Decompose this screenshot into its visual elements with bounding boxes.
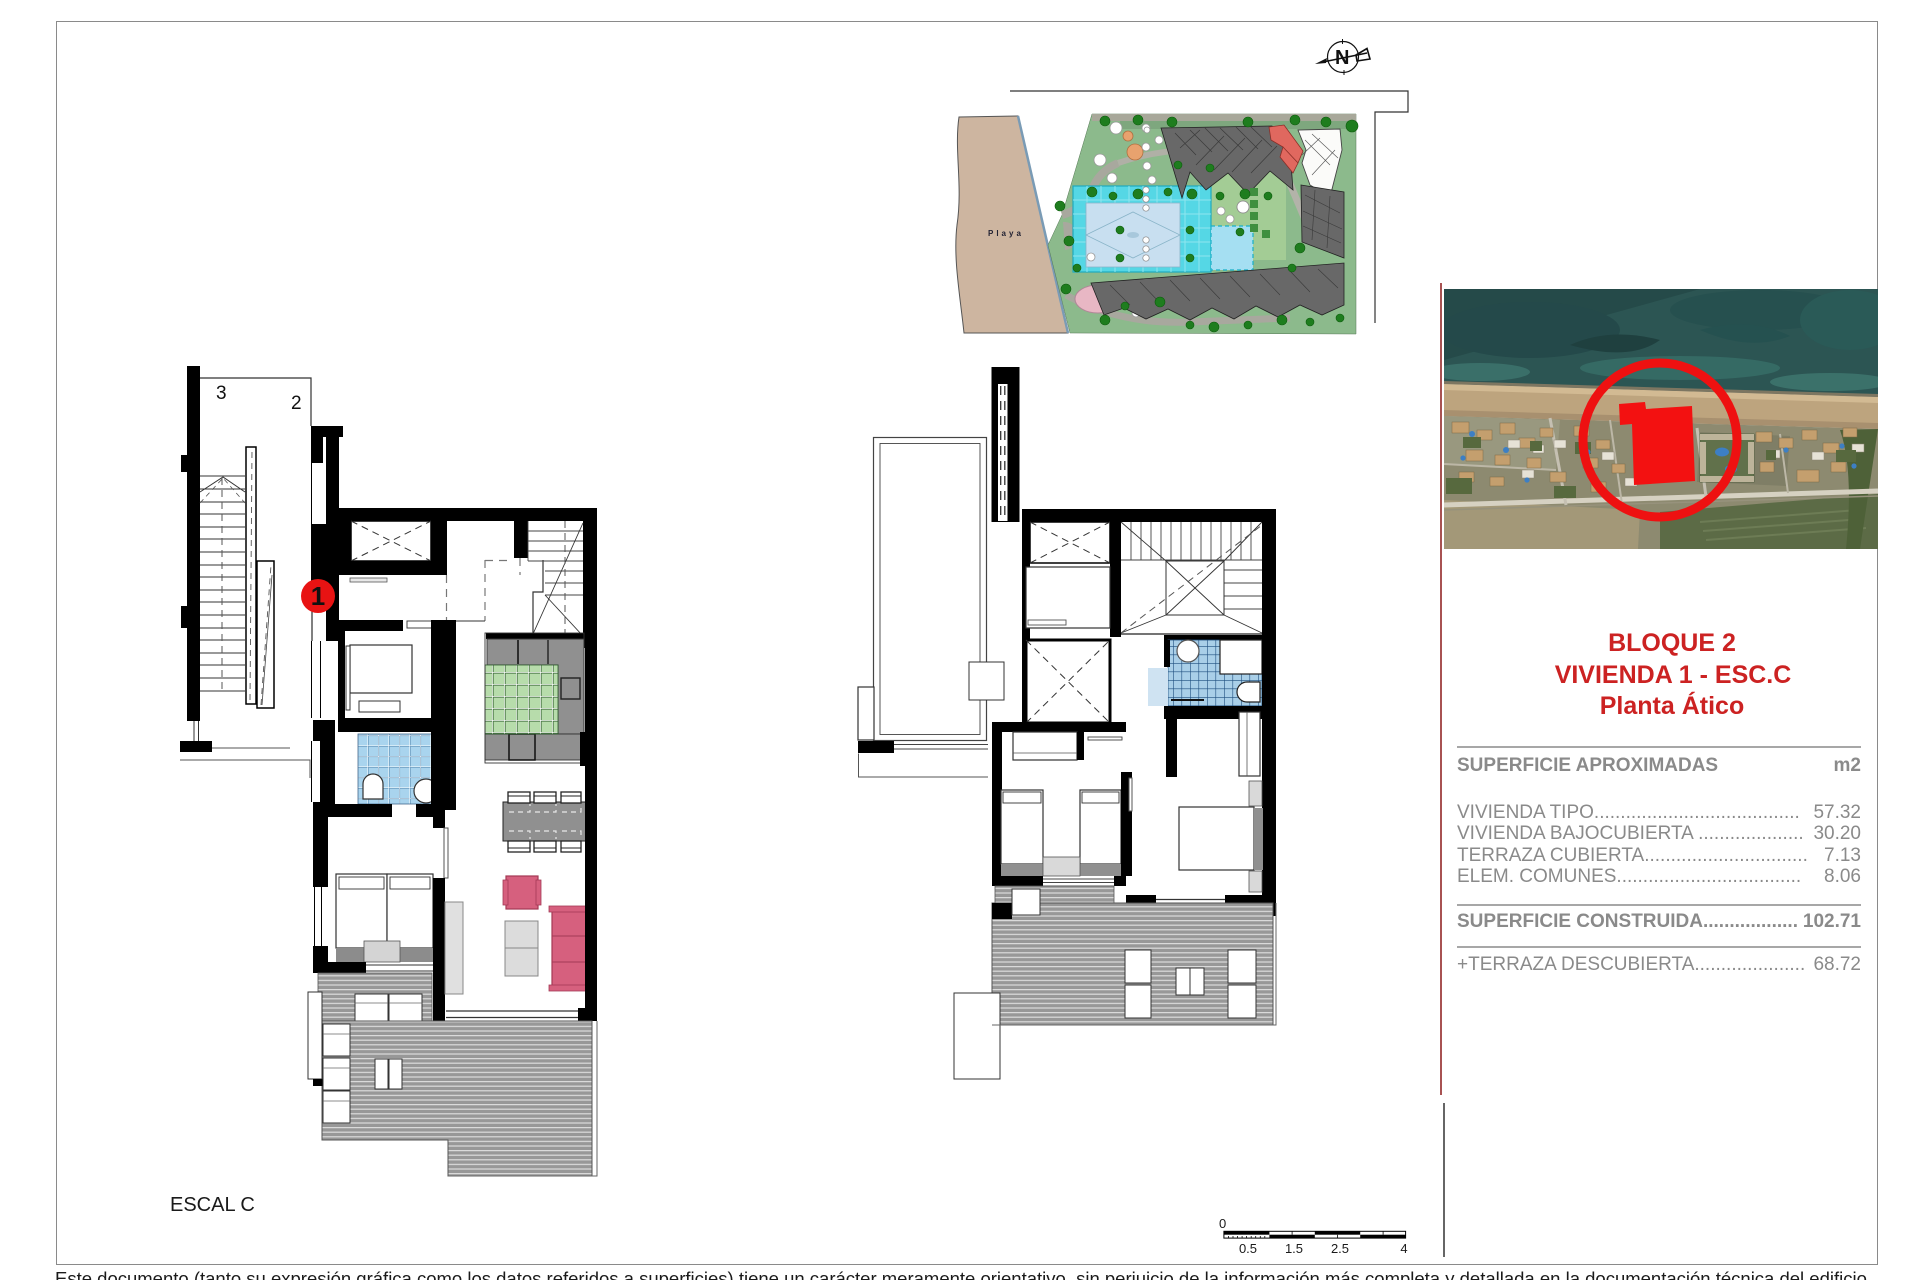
- svg-text:Planta Ático: Planta Ático: [1600, 691, 1744, 720]
- svg-text:N: N: [1335, 47, 1349, 69]
- svg-text:68.72: 68.72: [1813, 954, 1861, 975]
- svg-text:Este documento (tanto su expre: Este documento (tanto su expresión gráfi…: [55, 1268, 1872, 1280]
- svg-text:m2: m2: [1834, 755, 1861, 776]
- svg-text:2.5: 2.5: [1331, 1241, 1349, 1256]
- svg-text:8.06: 8.06: [1824, 866, 1861, 887]
- svg-text:30.20: 30.20: [1813, 823, 1861, 844]
- svg-text:ELEM. COMUNES.................: ELEM. COMUNES...........................…: [1457, 866, 1801, 887]
- svg-text:+TERRAZA DESCUBIERTA..........: +TERRAZA DESCUBIERTA....................…: [1457, 954, 1805, 975]
- svg-text:VIVIENDA 1 - ESC.C: VIVIENDA 1 - ESC.C: [1555, 661, 1792, 689]
- svg-text:SUPERFICIE APROXIMADAS: SUPERFICIE APROXIMADAS: [1457, 755, 1718, 776]
- svg-text:2: 2: [291, 393, 302, 414]
- svg-text:BLOQUE 2: BLOQUE 2: [1608, 629, 1736, 657]
- svg-text:57.32: 57.32: [1813, 802, 1861, 823]
- svg-text:TERRAZA CUBIERTA..............: TERRAZA CUBIERTA........................…: [1457, 845, 1808, 866]
- svg-text:Playa: Playa: [988, 229, 1024, 238]
- svg-text:0.5: 0.5: [1239, 1241, 1257, 1256]
- svg-text:1: 1: [311, 581, 325, 611]
- svg-text:3: 3: [216, 383, 227, 404]
- svg-text:VIVIENDA TIPO.................: VIVIENDA TIPO...........................…: [1457, 802, 1800, 823]
- svg-text:ESCAL C: ESCAL C: [170, 1194, 255, 1216]
- svg-text:7.13: 7.13: [1824, 845, 1861, 866]
- svg-text:VIVIENDA BAJOCUBIERTA ........: VIVIENDA BAJOCUBIERTA ..................…: [1457, 823, 1804, 844]
- svg-text:4: 4: [1400, 1241, 1407, 1256]
- svg-text:102.71: 102.71: [1803, 911, 1862, 932]
- svg-text:0: 0: [1219, 1216, 1226, 1231]
- svg-text:1.5: 1.5: [1285, 1241, 1303, 1256]
- svg-text:SUPERFICIE CONSTRUIDA.........: SUPERFICIE CONSTRUIDA..................: [1457, 911, 1798, 932]
